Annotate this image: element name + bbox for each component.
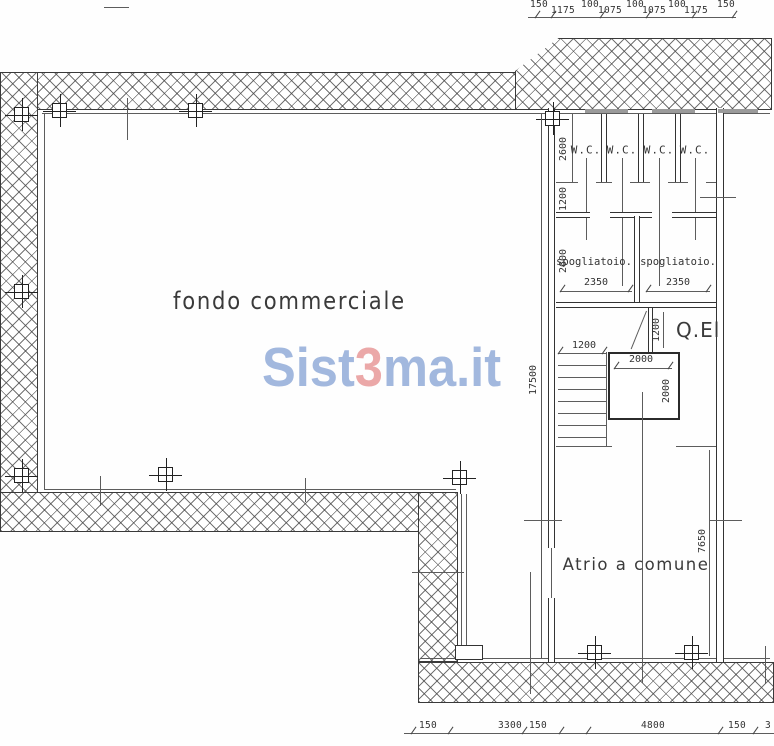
changing-top-wall [556, 212, 590, 218]
changing-top-wall [610, 212, 652, 218]
wall-face-line [461, 494, 462, 658]
dim-line [558, 353, 606, 354]
stray-tick [104, 7, 129, 8]
door-swing-line [695, 158, 696, 240]
dim-top-8: 150 [717, 0, 735, 10]
dim-bottom-5: 3 [765, 721, 771, 731]
changing-bottom-wall [556, 302, 716, 308]
door-swing-line [586, 158, 587, 240]
stair-tread [558, 389, 606, 390]
level-tick [100, 476, 101, 506]
wc-front-wall [630, 182, 650, 183]
zone-line [556, 446, 612, 447]
dim-bottom-2: 150 [529, 721, 547, 731]
wc-front-wall [668, 182, 688, 183]
wall-left [0, 72, 38, 532]
entrance-line [530, 572, 531, 694]
room-label-wc-4: W.C. [680, 145, 711, 156]
wall-step [418, 492, 458, 662]
door-leaf-line [631, 311, 647, 349]
corner-post [455, 645, 483, 660]
dim-bottom-0: 150 [419, 721, 437, 731]
pillar [188, 103, 203, 118]
center-line [642, 392, 643, 683]
pillar [14, 284, 29, 299]
zone-line [676, 446, 716, 447]
dim-elevator-width: 2000 [629, 355, 653, 365]
pillar [158, 467, 173, 482]
dim-top-2: 100 [581, 0, 599, 10]
watermark-suffix: ma.it [383, 336, 501, 398]
dim-bottom-4: 150 [728, 721, 746, 731]
door-lintel [585, 109, 628, 113]
pillar [452, 470, 467, 485]
room-label-electrical: Q.El [676, 320, 720, 340]
pillar [14, 468, 29, 483]
door-lintel [652, 109, 695, 113]
room-label-changing-right: spogliatoio. [640, 257, 716, 268]
stair-tread [558, 425, 606, 426]
wall-face-line [466, 494, 467, 658]
level-tick [412, 572, 464, 573]
dim-line-top [528, 17, 736, 18]
dim-changing-right: 2350 [666, 278, 690, 288]
dim-line [614, 368, 672, 369]
level-tick [127, 98, 128, 140]
pillar [14, 107, 29, 122]
dim-bottom-3: 4800 [641, 721, 665, 731]
stair-side-line [606, 352, 607, 446]
watermark-prefix: Sist [262, 336, 355, 398]
dim-stair-width: 1200 [572, 341, 596, 351]
level-tick [710, 520, 742, 521]
room-label-main: fondo commerciale [173, 289, 406, 313]
room-label-wc-2: W.C. [607, 145, 638, 156]
dim-line [663, 312, 664, 348]
dim-changing-depth: 2600 [559, 249, 569, 273]
wall-top-right [515, 38, 772, 110]
level-tick [700, 197, 736, 198]
pillar [684, 645, 699, 660]
wall-bottom-main [0, 492, 458, 532]
wall-bottom [418, 662, 774, 703]
dim-elevator-side: 1200 [652, 318, 662, 342]
wall-face-line [44, 113, 45, 489]
level-tick [305, 478, 306, 502]
stair-tread [558, 377, 606, 378]
dim-overall-height: 17500 [529, 365, 539, 395]
dim-line [646, 291, 710, 292]
room-label-wc-3: W.C. [644, 145, 675, 156]
dim-elevator-depth: 2000 [662, 379, 672, 403]
dim-atrium-height: 7650 [698, 529, 708, 553]
wall-face-line [42, 113, 770, 114]
level-tick [524, 520, 562, 521]
stair-tread [558, 437, 606, 438]
dim-wc-corridor: 1200 [559, 187, 569, 211]
changing-top-wall [672, 212, 716, 218]
wc-front-wall [596, 182, 612, 183]
pillar [52, 103, 67, 118]
door-lintel [718, 109, 758, 113]
watermark: Sist3ma.it [262, 340, 501, 395]
dim-top-5: 1075 [642, 6, 666, 16]
watermark-accent: 3 [355, 336, 383, 398]
dim-wc-depth: 2600 [559, 137, 569, 161]
dim-changing-left: 2350 [584, 278, 608, 288]
room-label-wc-1: W.C. [571, 145, 602, 156]
dim-bottom-1: 3300 [498, 721, 522, 731]
dim-line [709, 450, 710, 656]
stair-tread [558, 401, 606, 402]
pillar [587, 645, 602, 660]
wall-right [716, 108, 724, 662]
dim-line-overall [541, 114, 542, 658]
room-label-atrium: Atrio a comune [556, 557, 716, 574]
wall-face-line [44, 489, 456, 490]
wc-front-wall [556, 182, 578, 183]
wall-top-left [0, 72, 545, 110]
floor-plan: 150 1175 100 1075 100 1075 100 1175 150 … [0, 0, 774, 746]
level-tick [765, 646, 766, 684]
wc-front-wall [706, 182, 716, 183]
opening-line [551, 548, 552, 598]
dim-top-0: 150 [530, 0, 548, 10]
stair-tread [558, 365, 606, 366]
dim-line [560, 291, 632, 292]
pillar [545, 111, 560, 126]
stair-tread [558, 413, 606, 414]
